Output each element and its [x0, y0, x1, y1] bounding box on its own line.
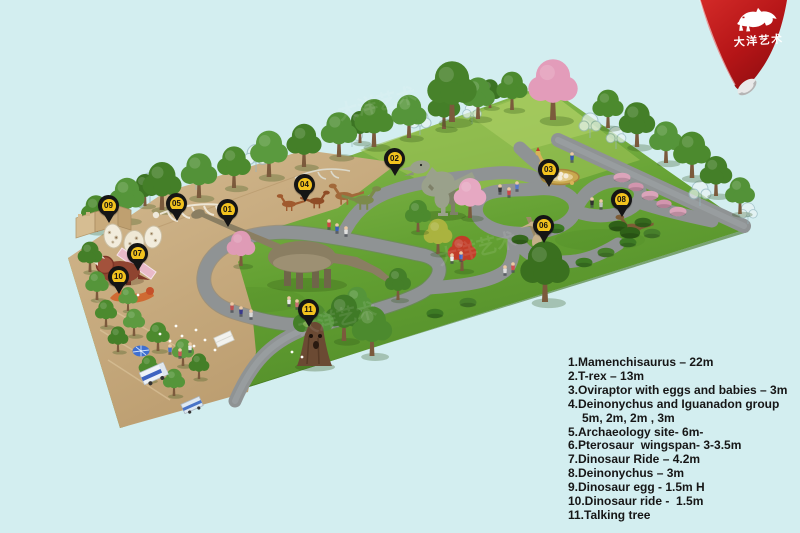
pin-number: 01: [221, 203, 235, 217]
brand-logo: 大洋艺术: [690, 0, 800, 100]
legend-item: 7.Dinosaur Ride – 4.2m: [568, 453, 787, 467]
legend-item: 3.Oviraptor with eggs and babies – 3m: [568, 384, 787, 398]
map-pin-07[interactable]: 07: [127, 243, 149, 273]
legend-item: 5m, 2m, 2m , 3m: [568, 412, 787, 426]
pin-number: 10: [112, 270, 126, 284]
legend-item: 10.Dinosaur ride - 1.5m: [568, 495, 787, 509]
map-pin-11[interactable]: 11: [298, 299, 320, 329]
legend-item: 1.Mamenchisaurus – 22m: [568, 356, 787, 370]
map-pin-03[interactable]: 03: [538, 159, 560, 189]
legend-item: 2.T-rex – 13m: [568, 370, 787, 384]
pin-number: 02: [388, 152, 402, 166]
map-pin-09[interactable]: 09: [98, 195, 120, 225]
map-pin-01[interactable]: 01: [217, 199, 239, 229]
map-pin-10[interactable]: 10: [108, 266, 130, 296]
pin-number: 09: [102, 199, 116, 213]
attractions-legend: 1.Mamenchisaurus – 22m 2.T-rex – 13m 3.O…: [568, 356, 787, 523]
pin-number: 04: [298, 178, 312, 192]
pin-number: 06: [537, 219, 551, 233]
legend-item: 5.Archaeology site- 6m-: [568, 426, 787, 440]
pin-number: 08: [615, 193, 629, 207]
blue-umbrella: [133, 346, 150, 357]
legend-item: 6.Pterosaur wingspan- 3-3.5m: [568, 439, 787, 453]
map-pin-08[interactable]: 08: [611, 189, 633, 219]
map-pin-06[interactable]: 06: [533, 215, 555, 245]
legend-item: 4.Deinonychus and Iguanadon group: [568, 398, 787, 412]
map-pin-04[interactable]: 04: [294, 174, 316, 204]
map-pin-02[interactable]: 02: [384, 148, 406, 178]
legend-item: 9.Dinosaur egg - 1.5m H: [568, 481, 787, 495]
pin-number: 05: [170, 197, 184, 211]
pin-number: 07: [131, 247, 145, 261]
map-pin-05[interactable]: 05: [166, 193, 188, 223]
legend-item: 11.Talking tree: [568, 509, 787, 523]
legend-item: 8.Deinonychus – 3m: [568, 467, 787, 481]
pin-number: 11: [302, 303, 316, 317]
dinosaur-park-plan: 大洋艺术 大洋艺术 大洋艺术 01 02 03 04 05 06 07 08 0…: [0, 0, 800, 533]
pin-number: 03: [542, 163, 556, 177]
